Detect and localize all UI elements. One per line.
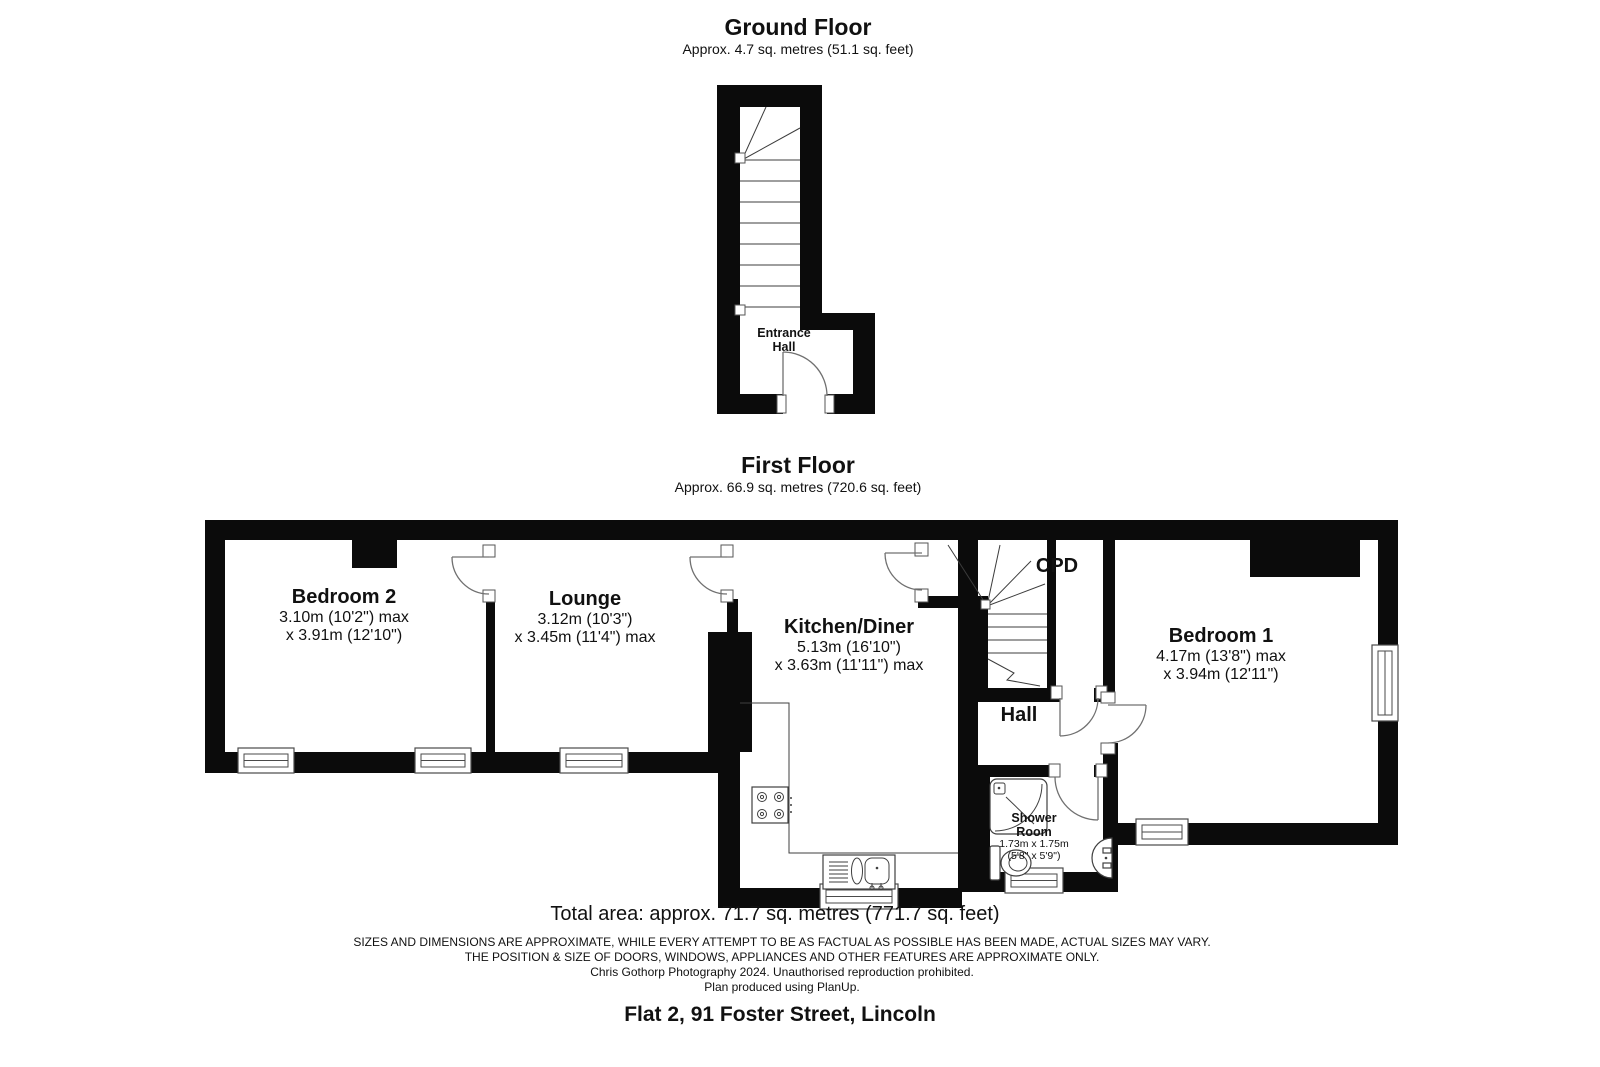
first-floor-area: Approx. 66.9 sq. metres (720.6 sq. feet): [675, 480, 922, 496]
software-text: Plan produced using PlanUp.: [704, 981, 859, 995]
ground-floor-title: Ground Floor: [725, 14, 872, 40]
room-area-kitchen-diner: [740, 540, 958, 888]
credit-text: Chris Gothorp Photography 2024. Unauthor…: [590, 966, 974, 980]
disclaimer-line1: SIZES AND DIMENSIONS ARE APPROXIMATE, WH…: [353, 936, 1210, 950]
total-area-text: Total area: approx. 71.7 sq. metres (771…: [550, 903, 999, 926]
room-area-bedroom2: [225, 540, 486, 752]
newel-post: [735, 305, 745, 315]
door-jamb: [825, 395, 834, 413]
stairs-ground: [735, 107, 800, 315]
newel-post: [735, 153, 745, 163]
door-jamb: [777, 395, 786, 413]
room-area-hall: [978, 702, 1103, 765]
hall-label: Hall: [1001, 704, 1038, 727]
bedroom1-label: Bedroom 1 4.17m (13'8") max x 3.94m (12'…: [1156, 625, 1286, 684]
ground-floor-plan: [717, 85, 875, 414]
lounge-label: Lounge 3.12m (10'3") x 3.45m (11'4") max: [515, 588, 656, 647]
floorplan-page: Ground Floor Approx. 4.7 sq. metres (51.…: [0, 0, 1600, 1067]
first-floor-title: First Floor: [741, 452, 855, 478]
kitchen-diner-label: Kitchen/Diner 5.13m (16'10") x 3.63m (11…: [775, 616, 924, 675]
bedroom2-label: Bedroom 2 3.10m (10'2") max x 3.91m (12'…: [279, 586, 409, 645]
first-floor-plan: [205, 520, 1398, 909]
cpd-label: CPD: [1036, 555, 1078, 578]
door-opening: [783, 394, 827, 414]
disclaimer-line2: THE POSITION & SIZE OF DOORS, WINDOWS, A…: [465, 951, 1100, 965]
shower-room-label: Shower Room 1.73m x 1.75m (5'8" x 5'9"): [999, 812, 1068, 862]
address-title: Flat 2, 91 Foster Street, Lincoln: [624, 1003, 936, 1027]
room-area-stairs: [930, 540, 1047, 688]
ground-floor-area: Approx. 4.7 sq. metres (51.1 sq. feet): [682, 42, 913, 58]
entrance-hall-label: Entrance Hall: [757, 327, 811, 354]
